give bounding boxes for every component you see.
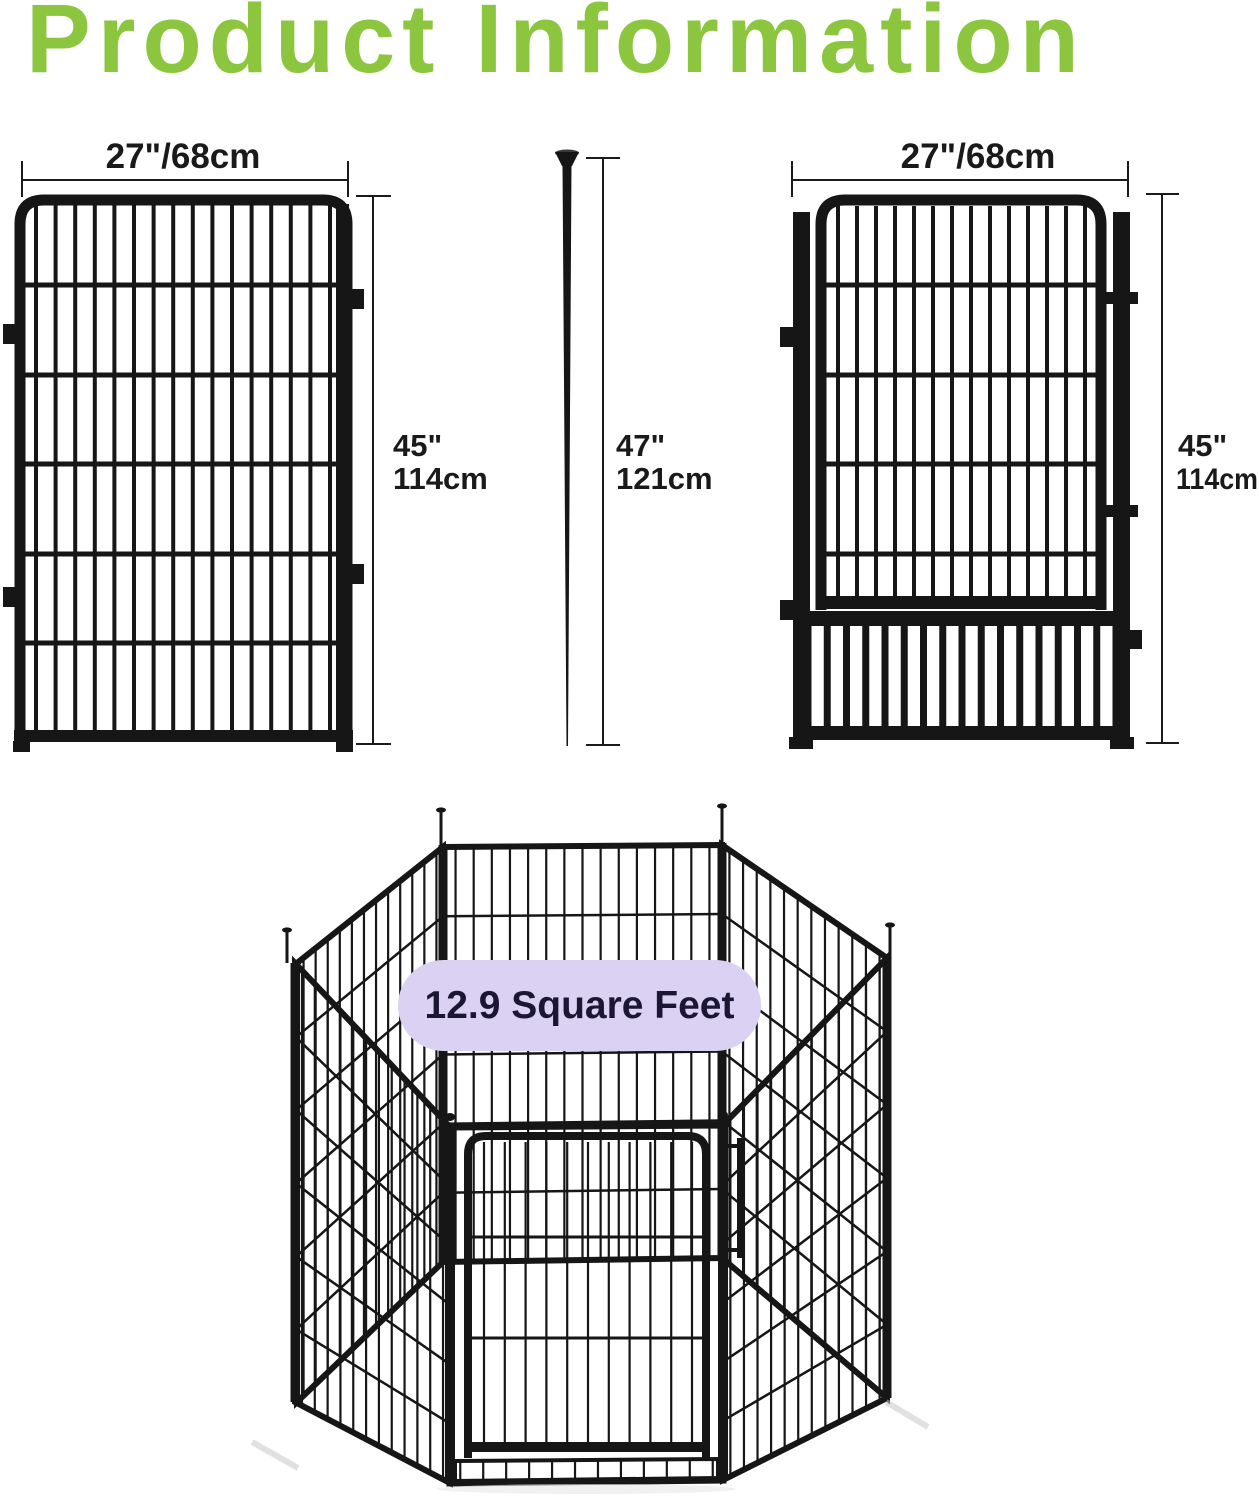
panel-height-label-in: 45" bbox=[393, 428, 442, 463]
product-information-page: Product Information 27"/68cm 45" 114cm bbox=[0, 0, 1259, 1500]
fence-panel-diagram bbox=[3, 200, 364, 752]
gate-height-label-in: 45" bbox=[1178, 428, 1227, 463]
playpen-render bbox=[252, 803, 928, 1494]
product-dimension-scene: 27"/68cm 45" 114cm 47" 121cm bbox=[0, 0, 1259, 1500]
stake-height-dimension bbox=[586, 158, 620, 745]
gate-width-label: 27"/68cm bbox=[901, 137, 1056, 176]
gate-height-label-cm: 114cm bbox=[1176, 463, 1258, 496]
area-badge-label: 12.9 Square Feet bbox=[425, 984, 735, 1028]
stake-diagram bbox=[555, 150, 579, 747]
area-badge: 12.9 Square Feet bbox=[398, 960, 761, 1051]
panel-width-label: 27"/68cm bbox=[106, 137, 261, 176]
stake-height-label-cm: 121cm bbox=[616, 461, 713, 496]
stake-height-label-in: 47" bbox=[616, 428, 665, 463]
gate-panel-diagram bbox=[780, 200, 1142, 749]
gate-height-dimension bbox=[1146, 194, 1179, 743]
panel-height-label-cm: 114cm bbox=[393, 461, 488, 496]
panel-height-dimension bbox=[356, 196, 391, 744]
